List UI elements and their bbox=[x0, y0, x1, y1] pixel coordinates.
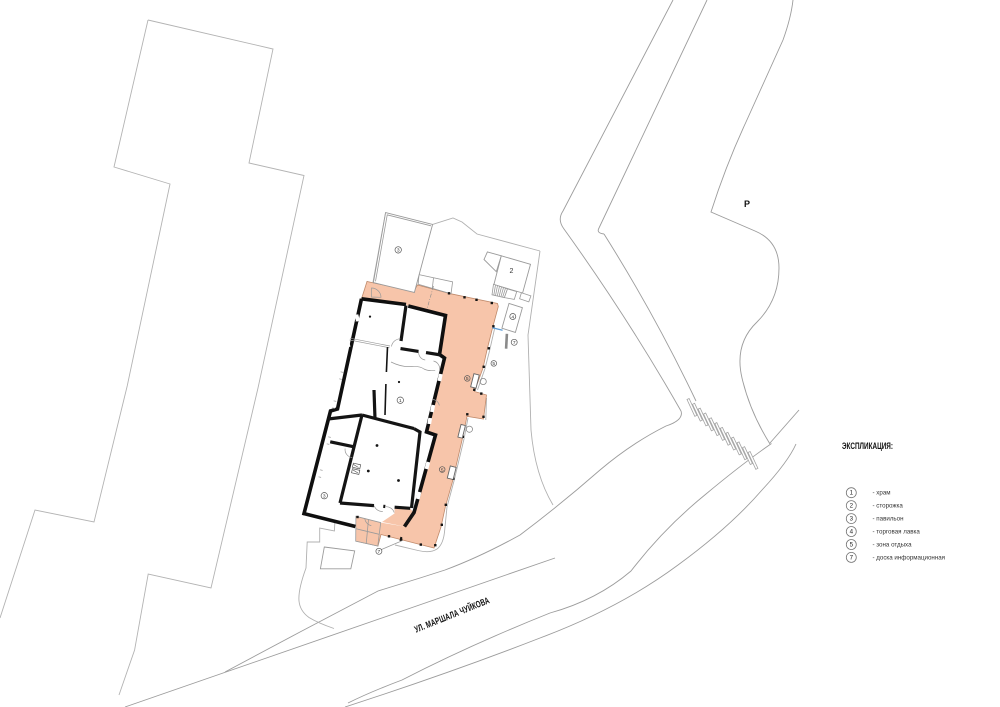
svg-text:- храм: - храм bbox=[873, 490, 891, 497]
svg-text:УЛ. МАРШАЛА ЧУЙКОВА: УЛ. МАРШАЛА ЧУЙКОВА bbox=[413, 594, 491, 634]
svg-text:5: 5 bbox=[441, 467, 444, 473]
svg-text:5: 5 bbox=[466, 376, 469, 382]
svg-text:3: 3 bbox=[323, 494, 326, 500]
svg-text:2: 2 bbox=[510, 268, 514, 275]
svg-text:- павильон: - павильон bbox=[873, 516, 904, 523]
svg-text:3: 3 bbox=[850, 516, 854, 523]
svg-text:- зона отдыха: - зона отдыха bbox=[873, 542, 913, 549]
svg-text:5: 5 bbox=[492, 361, 495, 367]
svg-text:5: 5 bbox=[850, 542, 854, 549]
svg-text:7: 7 bbox=[850, 554, 854, 561]
svg-text:3: 3 bbox=[397, 248, 400, 254]
svg-text:- сторожка: - сторожка bbox=[873, 503, 904, 510]
svg-text:1: 1 bbox=[399, 398, 402, 404]
svg-text:7: 7 bbox=[378, 549, 381, 555]
svg-text:4: 4 bbox=[511, 314, 514, 320]
svg-text:4: 4 bbox=[850, 529, 854, 536]
svg-text:1: 1 bbox=[850, 490, 854, 497]
svg-text:2: 2 bbox=[850, 503, 854, 510]
svg-text:- доска информационная: - доска информационная bbox=[873, 554, 946, 561]
svg-text:ЭКСПЛИКАЦИЯ:: ЭКСПЛИКАЦИЯ: bbox=[842, 441, 893, 451]
svg-text:- торговая лавка: - торговая лавка bbox=[873, 529, 921, 536]
svg-text:P: P bbox=[744, 199, 750, 209]
svg-text:7: 7 bbox=[513, 340, 516, 346]
